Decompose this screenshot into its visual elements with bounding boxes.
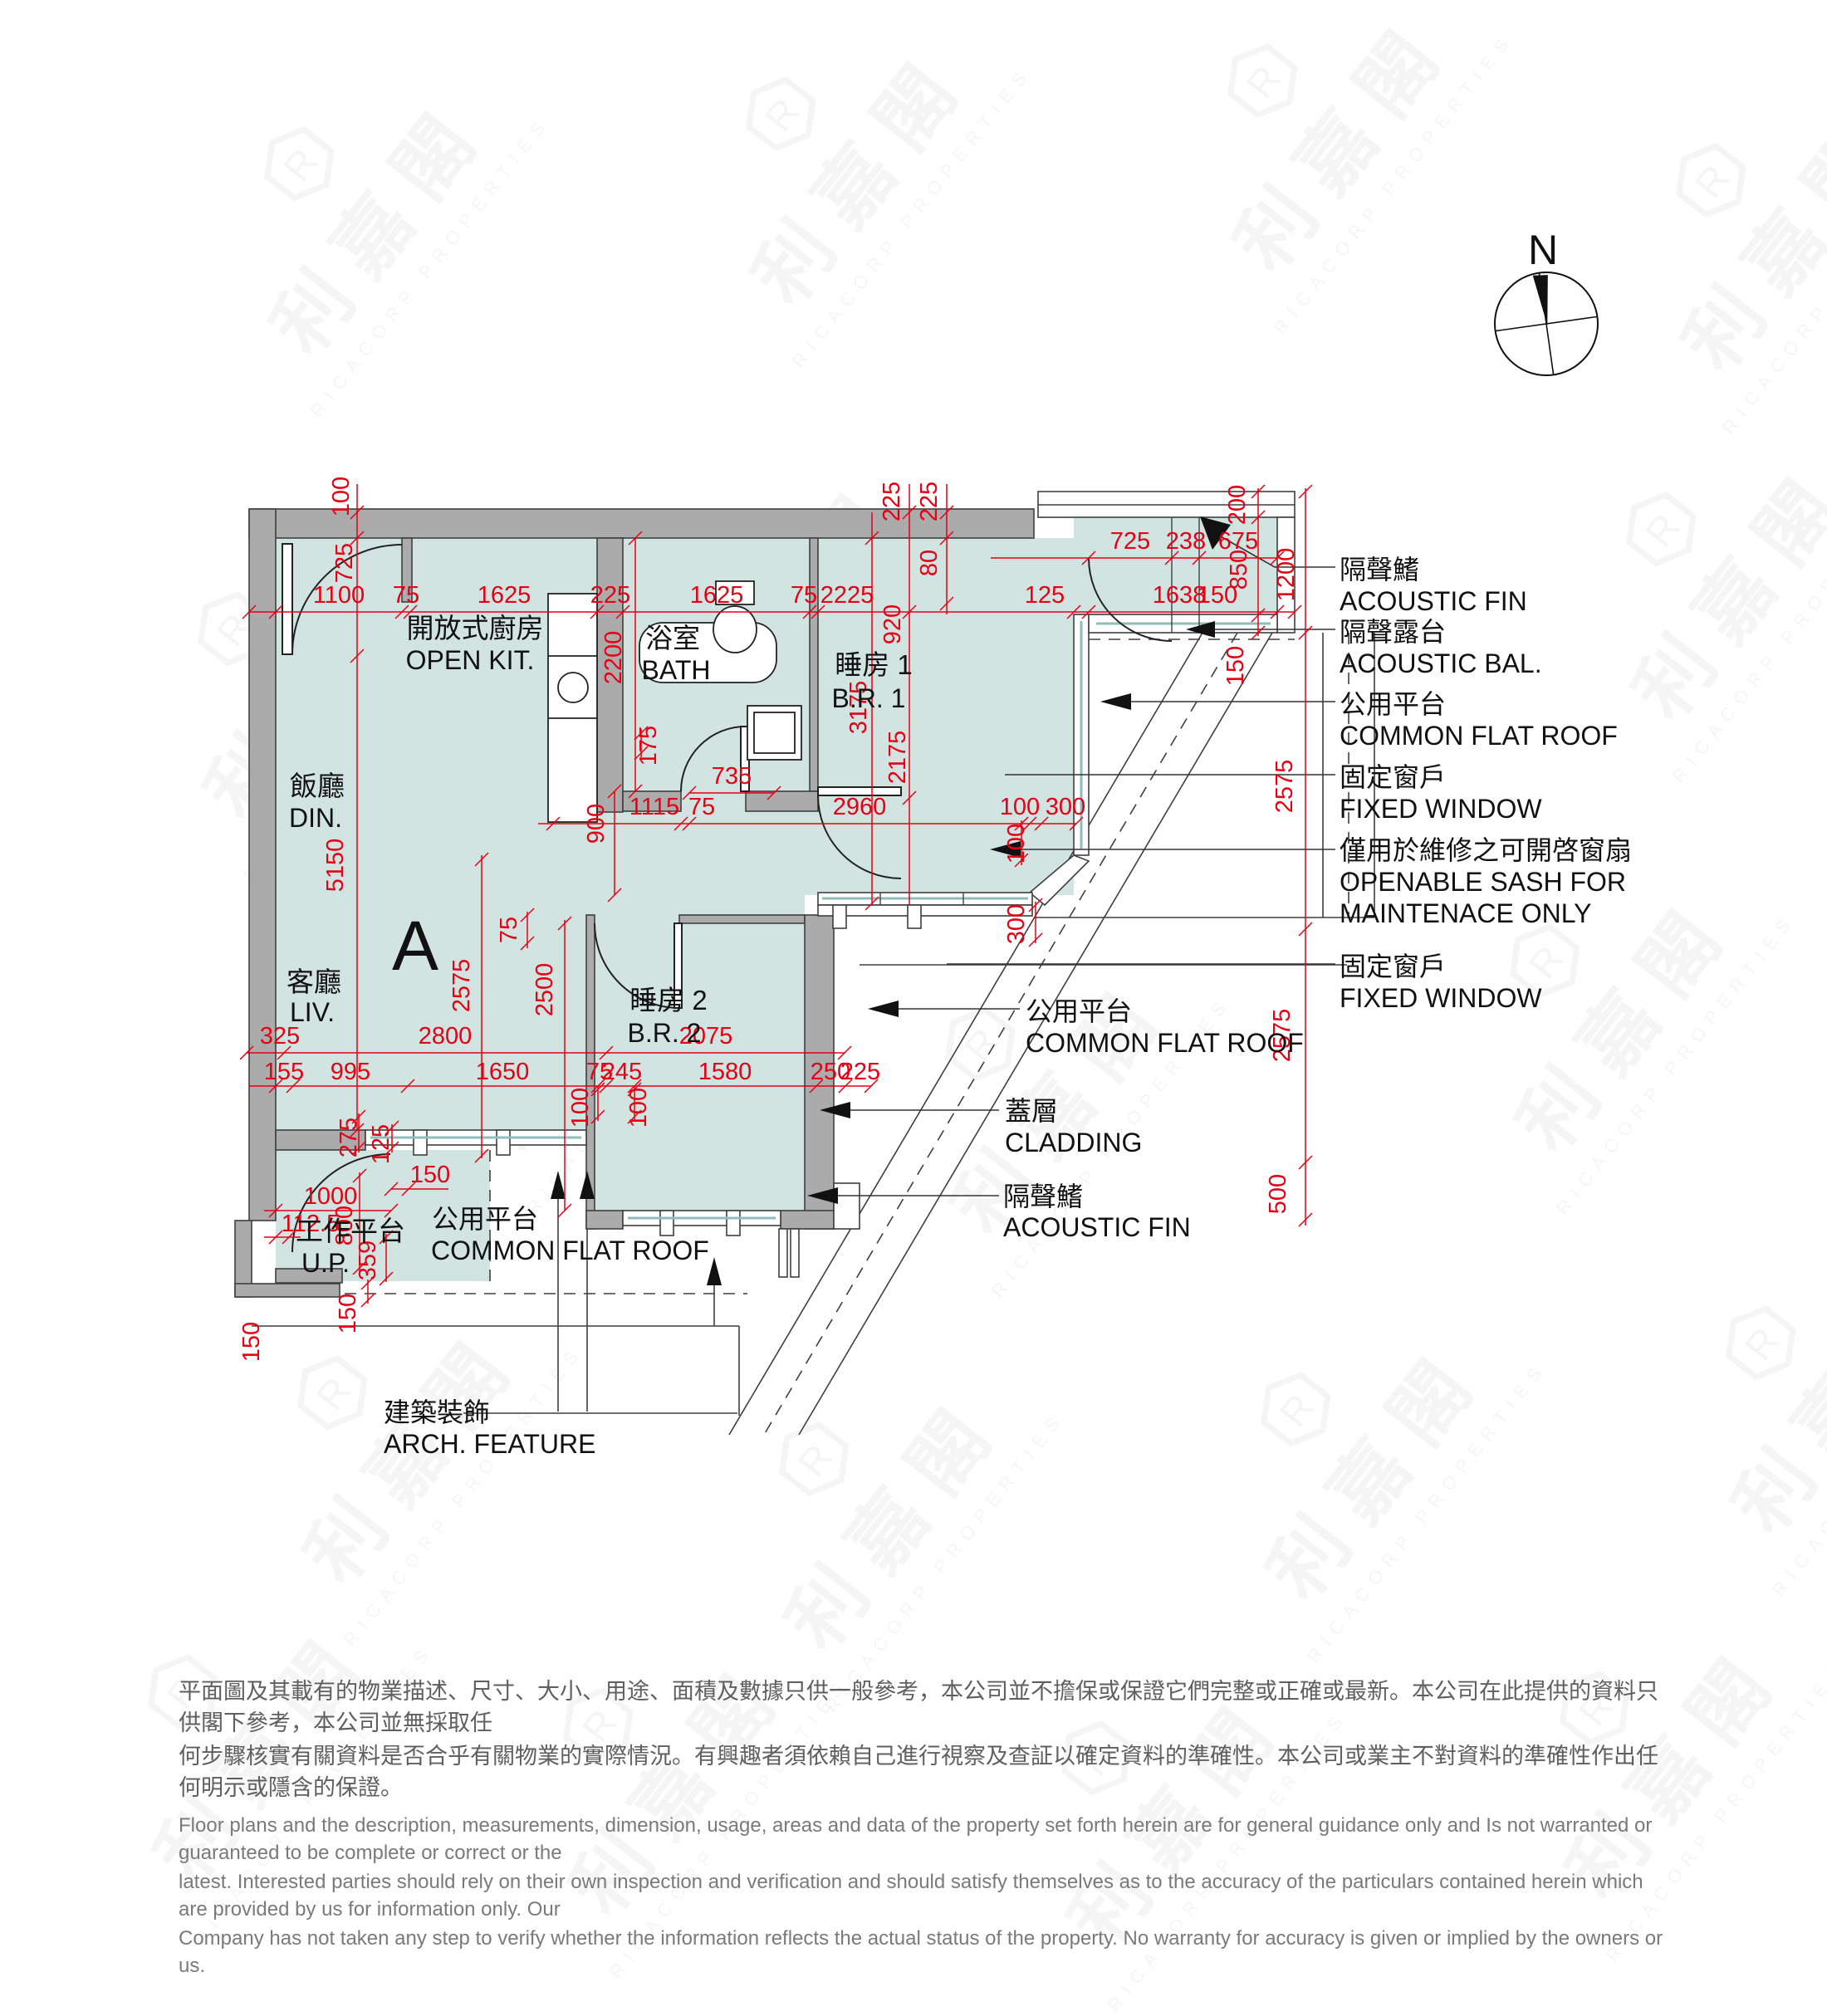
dimension-label: 200 — [1224, 485, 1251, 525]
dimension-label: 75 — [496, 917, 522, 943]
annotation-acoustic-fin-bottom-zh: 隔聲鰭 — [1003, 1182, 1083, 1211]
dimension-label: 995 — [331, 1059, 370, 1085]
annotation-acoustic-balcony-en: ACOUSTIC BAL. — [1340, 648, 1542, 678]
annotation-arch-feature-zh: 建築裝飾 — [384, 1397, 490, 1427]
disclaimer-zh-line2: 何步驟核實有關資料是否合乎有關物業的實際情況。有興趣者須依賴自己進行視察及查証以… — [179, 1740, 1673, 1803]
annotation-cfr-bottom-en: COMMON FLAT ROOF — [431, 1236, 709, 1265]
dimension-label: 150 — [335, 1294, 361, 1333]
room-label-din-en: DIN. — [289, 803, 342, 833]
dimension-label: 500 — [1265, 1174, 1291, 1214]
room-label-bath-zh: 浴室 — [645, 623, 700, 653]
dimension-label: 125 — [1025, 582, 1065, 609]
dimension-label: 100 — [1003, 824, 1030, 864]
room-label-up-en: U.P. — [301, 1248, 350, 1278]
dimension-label: 275 — [336, 1118, 362, 1157]
north-needle — [1533, 273, 1555, 326]
annotation-cfr-bottom-zh: 公用平台 — [432, 1204, 538, 1234]
dimension-label: 125 — [368, 1124, 394, 1164]
annotation-cfr-mid-zh: 公用平台 — [1026, 996, 1132, 1026]
dimension-label: 725 — [1110, 528, 1150, 555]
dimension-label: 150 — [1222, 646, 1249, 686]
annotation-openable-sash-en1: OPENABLE SASH FOR — [1340, 867, 1626, 897]
dimension-label: 1625 — [690, 582, 744, 609]
dimension-label: 100 — [625, 1088, 652, 1128]
dimension-label: 75 — [393, 582, 419, 609]
annotation-cfr-mid-en: COMMON FLAT ROOF — [1026, 1028, 1304, 1058]
room-label-br1-en: B.R. 1 — [832, 683, 906, 713]
disclaimer-en-line3: Company has not taken any step to verify… — [179, 1925, 1673, 1979]
dimension-label: 225 — [879, 482, 905, 521]
annotation-fixed-window-2-en: FIXED WINDOW — [1340, 983, 1542, 1013]
dimension-label: 150 — [238, 1322, 265, 1362]
dimension-label: 150 — [410, 1162, 450, 1188]
annotation-acoustic-fin-bottom-en: ACOUSTIC FIN — [1003, 1212, 1191, 1242]
dimension-label: 2175 — [884, 731, 911, 785]
dimension-label: 2800 — [419, 1023, 473, 1050]
room-label-liv-en: LIV. — [290, 997, 335, 1027]
dimension-label: 1115 — [629, 794, 679, 820]
dimension-label: 225 — [840, 1059, 880, 1085]
dimension-label: 2200 — [600, 631, 627, 685]
annotation-acoustic-fin-top-en: ACOUSTIC FIN — [1340, 586, 1527, 616]
annotation-cladding-en: CLADDING — [1005, 1128, 1142, 1157]
disclaimer: 平面圖及其載有的物業描述、尺寸、大小、用途、面積及數據只供一般參考，本公司並不擔… — [179, 1676, 1673, 1981]
dimension-label: 735 — [712, 763, 752, 790]
dimension-label: 1625 — [478, 582, 531, 609]
dimension-label: 225 — [590, 582, 630, 609]
dimension-label: 2225 — [820, 582, 874, 609]
annotation-openable-sash-en2: MAINTENACE ONLY — [1340, 898, 1591, 928]
dimension-label: 2500 — [531, 963, 558, 1017]
room-label-br2-en: B.R. 2 — [628, 1018, 702, 1048]
arrow-common-flat-roof-mid — [868, 1001, 899, 1017]
dimension-label: 1200 — [1273, 548, 1300, 602]
dimension-label: 75 — [688, 794, 715, 820]
north-arrow: N — [1488, 227, 1604, 382]
dimension-label: 2575 — [448, 959, 475, 1013]
annotation-acoustic-balcony-zh: 隔聲露台 — [1340, 617, 1446, 647]
arrow-up-1 — [551, 1171, 566, 1199]
dimension-label: 75 — [791, 582, 817, 609]
annotation-openable-sash-zh: 僅用於維修之可開啓窗扇 — [1340, 835, 1632, 865]
dimension-label: 175 — [635, 726, 662, 766]
dimension-label: 300 — [1046, 794, 1085, 820]
room-label-open-kitchen-zh: 開放式廚房 — [407, 613, 544, 643]
dimension-label: 1580 — [698, 1059, 752, 1085]
room-label-open-kitchen-en: OPEN KIT. — [406, 645, 535, 675]
room-label-liv-zh: 客廳 — [287, 966, 341, 997]
annotation-cfr-right-zh: 公用平台 — [1340, 689, 1446, 719]
room-label-din-zh: 飯廳 — [290, 771, 345, 801]
annotation-fixed-window-2-zh: 固定窗戶 — [1340, 952, 1446, 981]
dimension-label: 5150 — [322, 839, 349, 893]
annotation-fixed-window-1-en: FIXED WINDOW — [1340, 794, 1542, 824]
kitchen-counter — [548, 594, 597, 822]
disclaimer-en-line2: latest. Interested parties should rely o… — [179, 1868, 1673, 1923]
arrow-common-flat-roof-right — [1100, 693, 1131, 710]
dimension-label: 900 — [583, 804, 610, 844]
dimension-label: 100 — [567, 1088, 594, 1128]
dimension-label: 2575 — [1271, 760, 1298, 814]
dimension-label: 238 — [1166, 528, 1206, 555]
disclaimer-zh-line1: 平面圖及其載有的物業描述、尺寸、大小、用途、面積及數據只供一般參考，本公司並不擔… — [179, 1676, 1673, 1739]
annotation-cfr-right-en: COMMON FLAT ROOF — [1340, 721, 1618, 751]
dimension-label: 225 — [916, 482, 943, 521]
dimension-label: 100 — [328, 477, 355, 516]
dimension-label: 100 — [1000, 794, 1040, 820]
annotation-arch-feature-en: ARCH. FEATURE — [384, 1429, 595, 1459]
floor-plan-svg: 1007251100751625225162575222592080225225… — [0, 0, 1827, 1827]
dimension-label: 80 — [916, 550, 943, 576]
annotation-fixed-window-1-zh: 固定窗戶 — [1340, 762, 1446, 792]
dimension-label: 155 — [264, 1059, 304, 1085]
unit-letter: A — [392, 907, 438, 985]
dimension-label: 1650 — [476, 1059, 530, 1085]
room-label-br2-zh: 睡房 2 — [629, 985, 708, 1015]
dimension-label: 359 — [355, 1240, 381, 1280]
dimension-label: 2960 — [833, 794, 887, 820]
room-label-br1-zh: 睡房 1 — [835, 649, 913, 680]
room-label-up-zh: 工作平台 — [296, 1216, 405, 1246]
dimension-label: 850 — [1226, 550, 1252, 590]
north-label: N — [1528, 227, 1558, 273]
room-label-bath-en: BATH — [642, 655, 711, 685]
dimension-label: 245 — [602, 1059, 642, 1085]
disclaimer-en-line1: Floor plans and the description, measure… — [179, 1812, 1673, 1867]
annotation-cladding-zh: 蓋層 — [1005, 1096, 1058, 1126]
dimension-label: 300 — [1003, 904, 1030, 944]
annotation-acoustic-fin-top-zh: 隔聲鰭 — [1340, 555, 1419, 585]
floor-plan: 1007251100751625225162575222592080225225… — [0, 0, 1827, 1827]
dimension-label: 725 — [331, 543, 358, 583]
dimension-label: 1100 — [313, 582, 365, 609]
dimension-label: 920 — [879, 604, 906, 644]
